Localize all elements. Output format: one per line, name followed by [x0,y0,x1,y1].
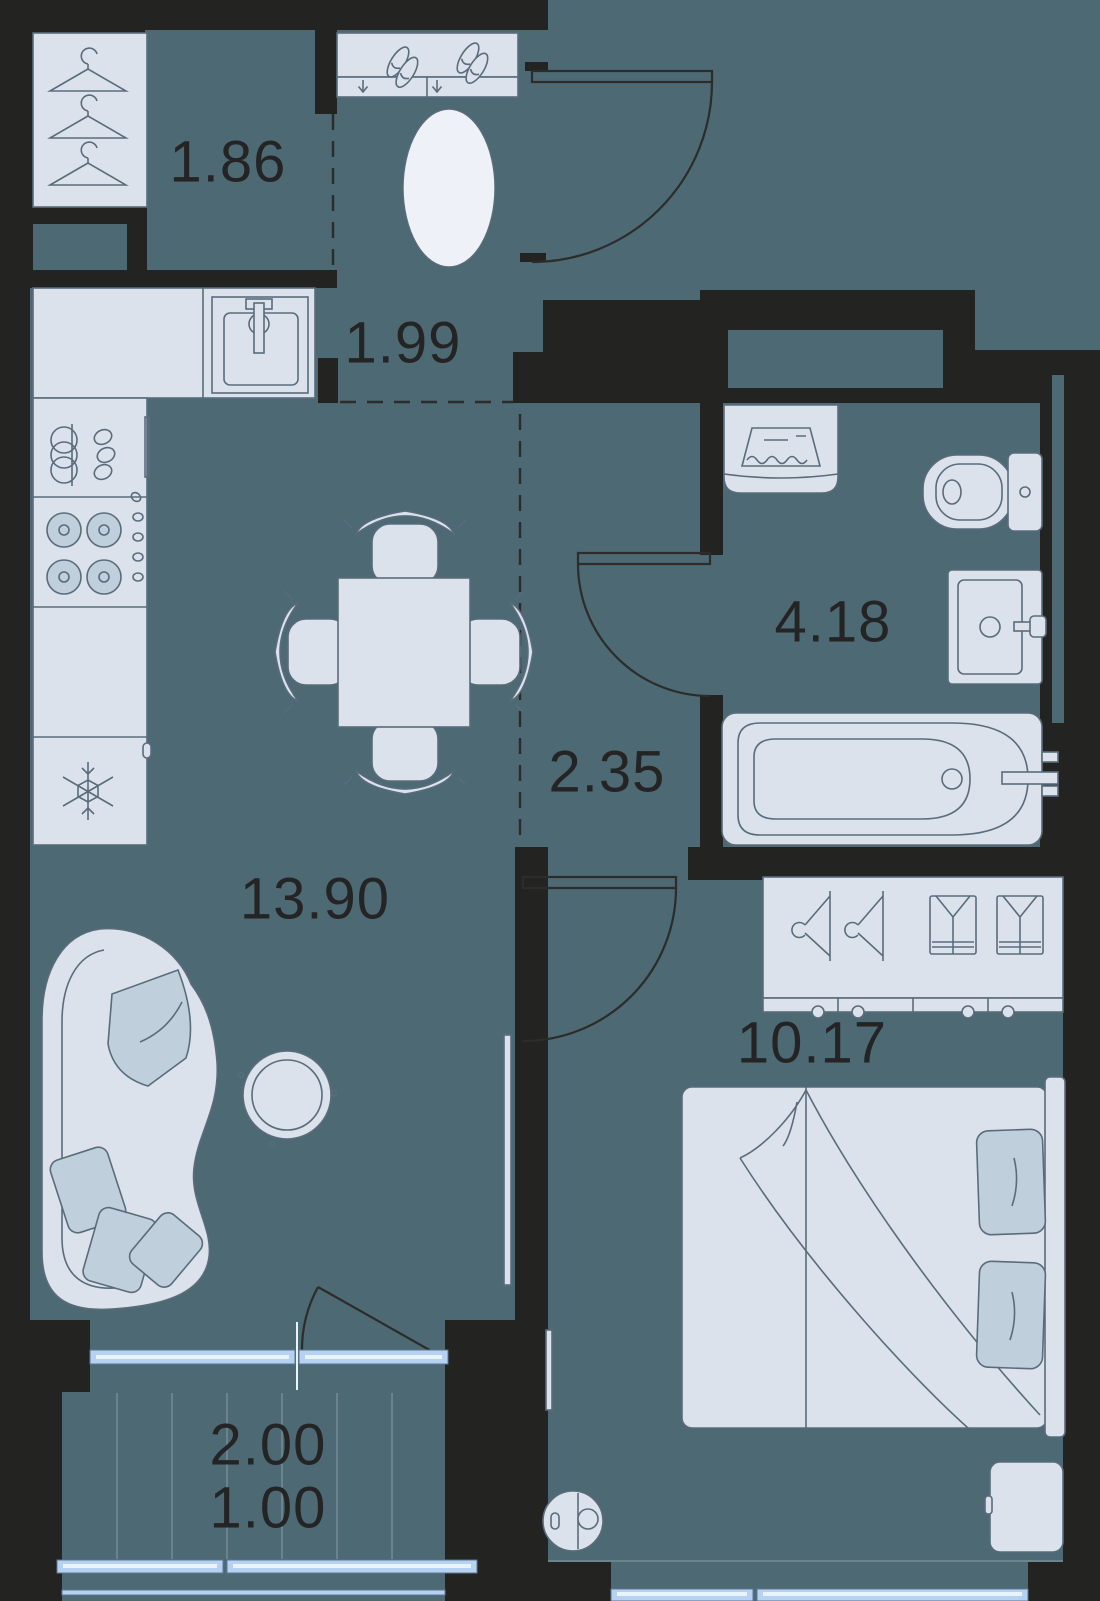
room-label-corridor: 2.35 [549,739,666,806]
room-label-balcony-counted: 1.00 [210,1475,327,1542]
radiator-bedroom [546,1330,552,1410]
radiator-living [504,1035,511,1285]
shoe-cabinet [337,33,518,97]
room-label-bathroom: 4.18 [775,589,892,656]
bedside-table [985,1462,1063,1552]
bedroom-wardrobe [763,877,1063,1018]
sofa [42,929,217,1310]
bathtub [722,713,1058,845]
floor-plan: 1.86 1.99 4.18 2.35 13.90 10.17 2.00 1.0… [0,0,1100,1601]
toilet [923,453,1042,531]
robot-vacuum-icon [543,1491,603,1551]
entry-rug [403,109,495,267]
room-label-bedroom: 10.17 [737,1010,887,1077]
room-label-balcony-total: 2.00 [210,1412,327,1479]
room-label-hallway: 1.99 [345,310,462,377]
washing-machine [724,405,838,493]
bathroom-sink [948,570,1046,684]
room-label-kitchen-living: 13.90 [240,866,390,933]
bed [682,1077,1065,1437]
closet-unit [33,33,147,207]
room-label-wardrobe: 1.86 [170,129,287,196]
